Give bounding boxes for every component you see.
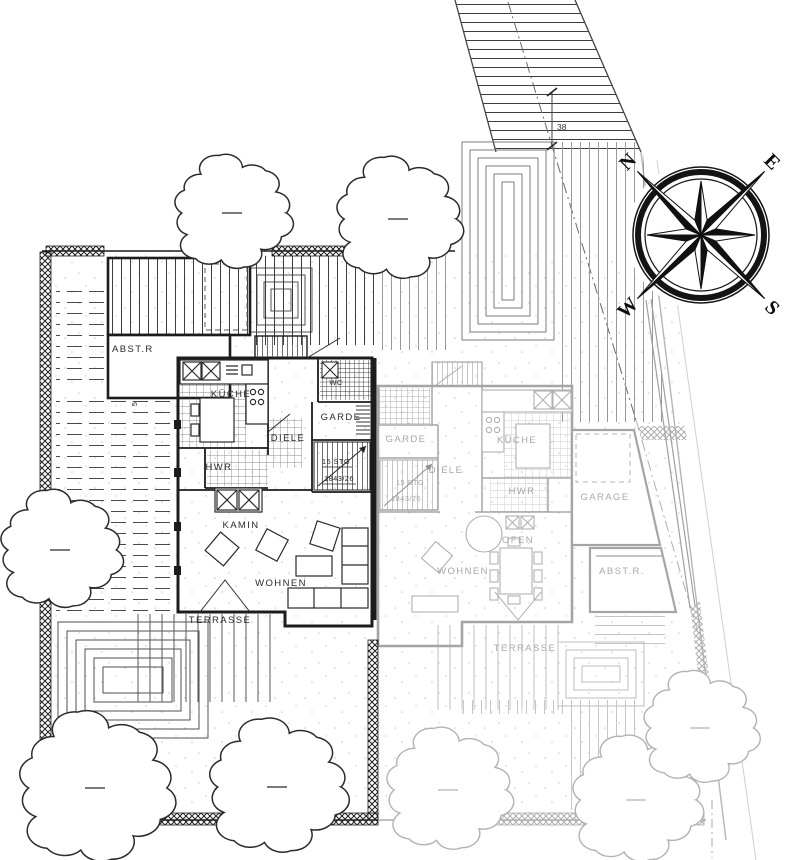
right-terrace-hatch bbox=[432, 625, 568, 710]
left-garage bbox=[108, 258, 250, 335]
label-right-garage: GARAGE bbox=[580, 492, 629, 503]
ramp-hatch bbox=[56, 282, 106, 390]
label-left-hwr: HWR bbox=[206, 462, 233, 473]
label-left-stair-dim: 1843/26 bbox=[324, 474, 354, 483]
label-left-abstellraum: ABST.R bbox=[112, 344, 154, 355]
label-right-ofen: OFEN bbox=[502, 535, 534, 546]
label-left-kueche: KÜCHE bbox=[211, 389, 251, 400]
right-wc-tiles bbox=[378, 388, 430, 425]
label-right-wohnen: WOHNEN bbox=[437, 566, 489, 577]
kamin-block bbox=[215, 488, 262, 512]
label-left-wohnen: WOHNEN bbox=[255, 578, 307, 589]
label-left-stair-count: 15 STG bbox=[322, 457, 350, 466]
label-left-garderobe: GARDE bbox=[321, 412, 362, 423]
site-plan-page: 38 bbox=[0, 0, 794, 860]
label-right-hwr: HWR bbox=[509, 486, 536, 497]
label-right-kueche: KÜCHE bbox=[497, 435, 537, 446]
top-boundary-hatch-a bbox=[46, 246, 104, 256]
right-entry-steps bbox=[432, 362, 482, 388]
label-left-kamin: KAMIN bbox=[222, 520, 259, 531]
right-abstellraum bbox=[590, 548, 676, 612]
garden-divider-fence bbox=[368, 640, 378, 820]
compass-star bbox=[637, 171, 764, 298]
site-plan-drawing: 38 bbox=[0, 0, 794, 860]
label-left-wc: WC bbox=[329, 378, 342, 387]
dimension-38-label: 38 bbox=[557, 122, 567, 132]
label-right-stair-count: 15 STG bbox=[396, 478, 424, 487]
label-right-stair-dim: 1843/26 bbox=[391, 494, 421, 503]
label-left-terrasse: TERRASSE bbox=[189, 615, 251, 626]
label-left-diele: DIELE bbox=[271, 433, 305, 444]
label-right-diele: DIELE bbox=[429, 465, 463, 476]
label-left-entry-steps: 5 bbox=[130, 402, 139, 407]
label-right-abstellraum: ABST.R. bbox=[599, 566, 645, 577]
label-right-garderobe: GARDE bbox=[386, 434, 427, 445]
top-boundary-hatch-b bbox=[272, 246, 352, 256]
left-terrace-hatch bbox=[130, 614, 272, 702]
label-right-terrasse: TERRASSE bbox=[494, 643, 556, 654]
